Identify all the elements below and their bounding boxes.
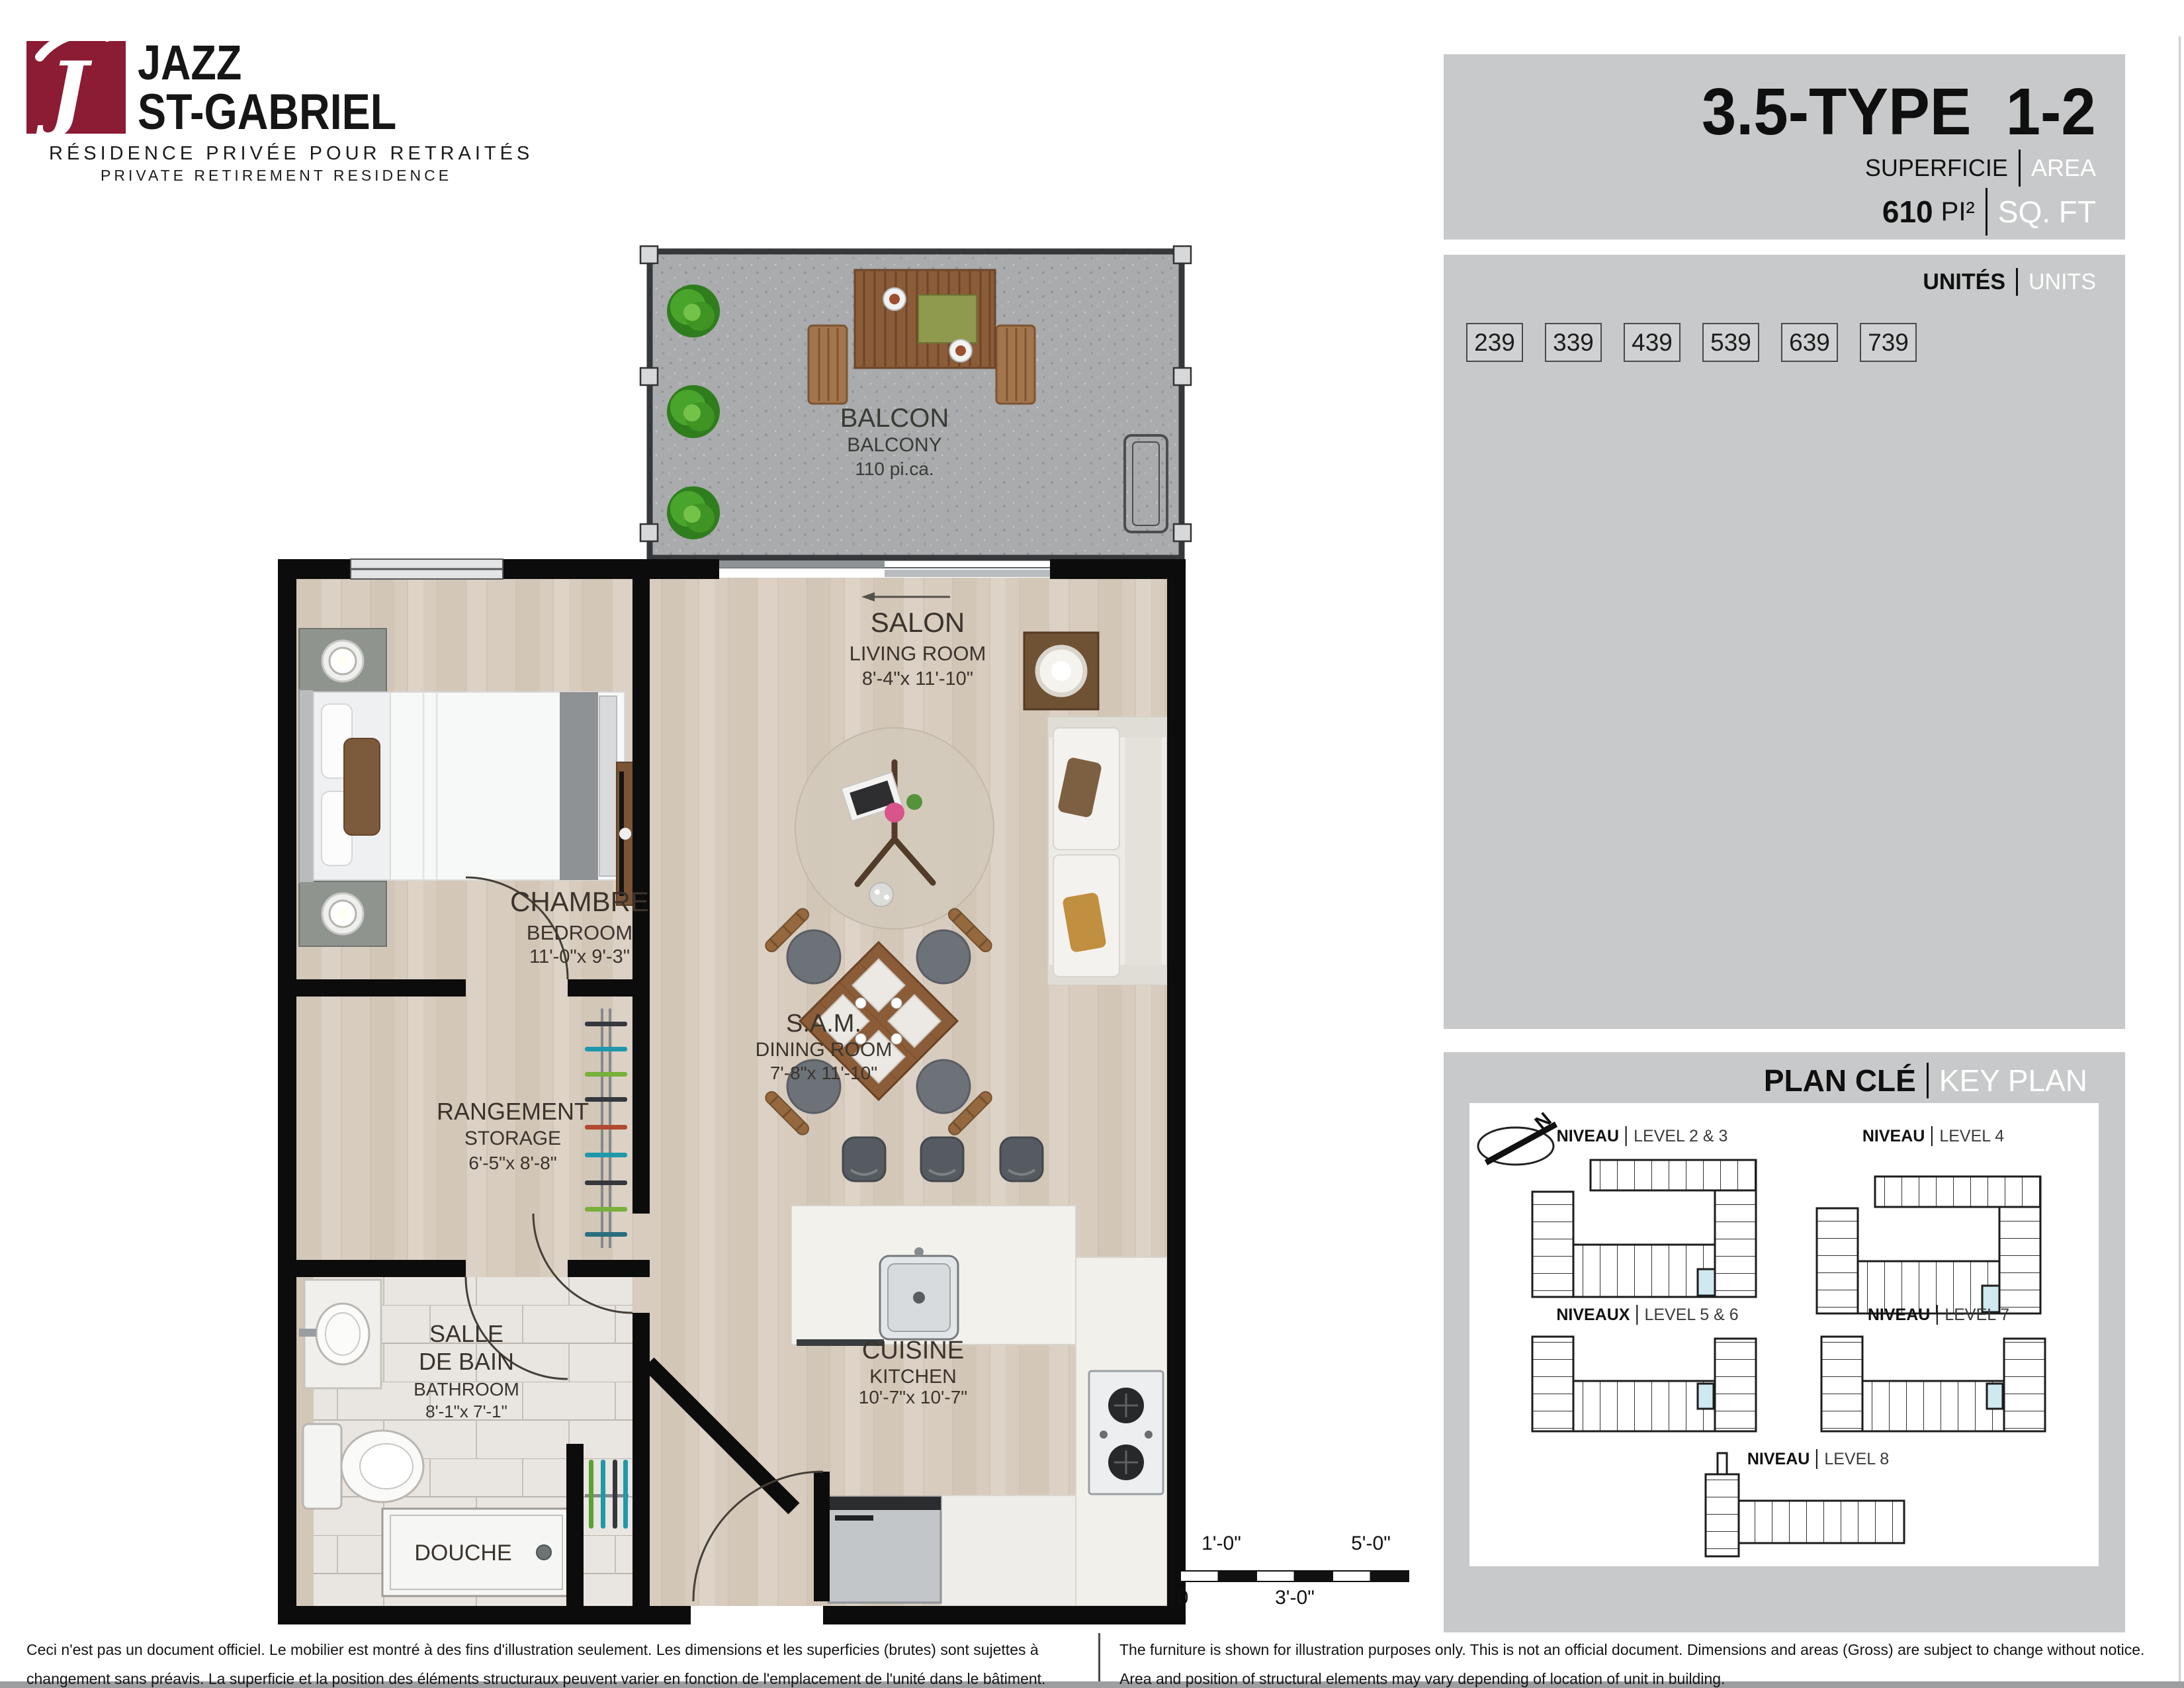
bedroom-window [351,559,503,579]
disclaimer-en: The furniture is shown for illustration … [1119,1636,2152,1688]
stove [1089,1371,1163,1494]
room-label-douche: DOUCHE [414,1542,511,1564]
keyplan-label-fr: PLAN CLÉ [1764,1065,1916,1096]
scale-label-0: 0 [1178,1588,1189,1608]
unit-number: 639 [1781,323,1838,362]
balcony-plants [667,285,720,539]
room-label-balcon-en: BALCONY [847,435,941,455]
room-label-balcon-dims: 110 pi.ca. [855,460,934,478]
floorplan-graphics: J [0,0,2184,1688]
room-label-chambre-dims: 11'-0"x 9'-3" [529,948,630,967]
scale-label-3ft: 3'-0" [1275,1588,1315,1608]
room-label-sdb-en: BATHROOM [414,1380,519,1399]
unit-number: 339 [1545,323,1602,362]
unit-number-list: 239 339 439 539 639 739 [1466,323,1917,362]
room-label-chambre-fr: CHAMBRE [510,888,649,916]
unit-number: 739 [1860,323,1917,362]
room-label-cuisine-dims: 10'-7"x 10'-7" [859,1388,967,1407]
bar-stool [843,1137,885,1181]
brand-tagline-fr: RÉSIDENCE PRIVÉE POUR RETRAITÉS [49,143,533,165]
room-label-salon-en: LIVING ROOM [850,643,986,664]
brand-tagline-en: PRIVATE RETIREMENT RESIDENCE [101,167,452,185]
keyplan-level23-footprint [1532,1160,1756,1297]
room-label-sdb-fr2: DE BAIN [419,1350,514,1374]
room-label-salon-fr: SALON [871,609,965,637]
keyplan-level7-footprint [1821,1337,2045,1431]
units-label-fr: UNITÉS [1923,271,2005,293]
fridge [828,1497,941,1603]
keyplan-level-label: NIVEAULEVEL 4 [1862,1126,2004,1146]
bar-stool [921,1137,963,1181]
unit-number: 239 [1466,323,1523,362]
side-table-lamp [1024,633,1098,709]
scale-label-5ft: 5'-0" [1351,1534,1391,1554]
bathroom-sink [299,1280,381,1388]
room-label-chambre-en: BEDROOM [527,922,633,943]
units-label-en: UNITS [2029,271,2096,293]
area-value: 610 [1882,197,1933,227]
floorplan-sheet: J [0,0,2184,1688]
keyplan-label-en: KEY PLAN [1939,1065,2087,1096]
room-label-rangement-en: STORAGE [464,1129,561,1149]
unit-number: 439 [1624,323,1681,362]
tv-console [617,762,634,905]
keyplan-level4-footprint [1817,1177,2040,1313]
keyplan-level-label: NIVEAULEVEL 8 [1747,1449,1889,1469]
area-label-fr: SUPERFICIE [1865,156,2008,180]
brand-name-line2: ST-GABRIEL [138,83,396,141]
room-label-rangement-dims: 6'-5"x 8'-8" [468,1154,556,1173]
disclaimer-fr: Ceci n'est pas un document officiel. Le … [26,1636,1085,1688]
keyplan-label-row: PLAN CLÉ KEY PLAN [1764,1063,2087,1098]
room-label-salon-dims: 8'-4"x 11'-10" [862,670,973,689]
unit-type-title: 3.5-TYPE 1-2 [1702,74,2096,150]
balcony-sliding-door [719,560,1050,577]
room-label-sdb-fr1: SALLE [429,1322,503,1346]
room-label-rangement-fr: RANGEMENT [437,1100,589,1124]
area-unit-en: SQ. FT [1998,197,2096,227]
keyplan-level-label: NIVEAULEVEL 7 [1868,1305,2009,1325]
page-edge-line [2179,36,2181,1681]
sofa [1048,717,1167,985]
unit-number: 539 [1702,323,1759,362]
kitchen-sink [880,1247,958,1339]
area-label-row: SUPERFICIE AREA [1865,150,2096,187]
scale-label-1ft: 1'-0" [1201,1534,1241,1554]
area-unit-fr: PI² [1941,199,1975,225]
bar-stool [1000,1137,1043,1181]
brand-logo-mark: J [26,32,126,140]
keyplan-level-label: NIVEAUXLEVEL 5 & 6 [1556,1305,1738,1325]
area-value-row: 610 PI² SQ. FT [1882,188,2096,236]
footer-divider [1098,1633,1100,1682]
room-label-balcon-fr: BALCON [840,405,949,431]
scale-bar [1180,1571,1409,1581]
brand-name-line1: JAZZ [138,34,241,91]
area-label-en: AREA [2031,156,2096,180]
nightstand-lamp [299,629,386,693]
room-label-sam-dims: 7'-8"x 11'-10" [770,1064,877,1083]
toilet [303,1424,423,1509]
keyplan-buildings [1532,1160,2045,1556]
nightstand-lamp [299,881,386,946]
room-label-sdb-dims: 8'-1"x 7'-1" [425,1403,507,1420]
room-label-sam-fr: S.A.M. [786,1011,861,1036]
units-label-row: UNITÉS UNITS [1923,268,2096,296]
room-label-sam-en: DINING ROOM [756,1040,893,1060]
room-label-cuisine-fr: CUISINE [862,1338,964,1363]
room-label-cuisine-en: KITCHEN [869,1367,957,1387]
bed [299,689,625,883]
keyplan-level56-footprint [1532,1337,1756,1431]
keyplan-level-label: NIVEAULEVEL 2 & 3 [1557,1126,1728,1146]
